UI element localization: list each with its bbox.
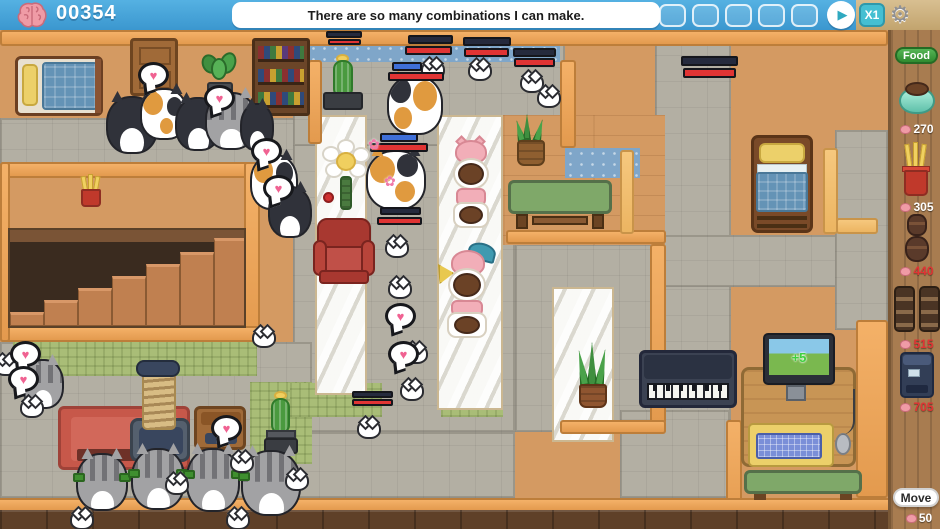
cat-status-bar — [380, 133, 418, 142]
cat-status-bar — [388, 72, 444, 81]
shop-sidebar: Food 270 305 440 515 — [888, 30, 940, 529]
white-kitten[interactable] — [400, 381, 424, 401]
progress-bar-pair — [408, 35, 453, 44]
brain-currency-icon — [900, 403, 911, 412]
food-category-button[interactable]: Food — [895, 47, 938, 64]
game-screen: +5 — [0, 0, 940, 529]
game-field: +5 — [0, 30, 888, 529]
progress-bar-pair — [405, 46, 452, 55]
progress-bar-pair — [683, 68, 736, 78]
heart-bubble: ♥ — [263, 175, 294, 201]
cactus-pot[interactable] — [318, 56, 368, 112]
heart-bubble: ♥ — [211, 415, 242, 441]
cactus-pot-2[interactable] — [260, 392, 302, 456]
speed-toggle-button[interactable]: X1 — [859, 3, 885, 27]
piano[interactable] — [639, 350, 737, 408]
progress-bar-pair — [464, 48, 509, 57]
white-kitten[interactable] — [285, 471, 309, 491]
heart-bubble: ♥ — [8, 366, 39, 392]
shop-item-double-feeder[interactable] — [894, 282, 940, 334]
move-button[interactable]: Move — [893, 488, 939, 507]
white-kitten[interactable] — [537, 88, 561, 108]
cat-calico[interactable] — [366, 150, 426, 210]
brain-currency-icon — [906, 514, 917, 523]
white-kitten[interactable] — [385, 238, 409, 258]
cat-status-bar — [392, 62, 422, 71]
staircase — [8, 228, 246, 328]
gear-icon[interactable]: ⚙ — [886, 0, 914, 28]
heart-bubble: ♥ — [138, 62, 169, 88]
bed-right[interactable] — [751, 135, 813, 233]
wall-yellow — [620, 150, 634, 234]
inventory-slot[interactable] — [692, 4, 719, 27]
stone-path — [655, 235, 852, 287]
shop-item-food-machine[interactable] — [900, 352, 934, 398]
progress-bar-pair — [326, 31, 362, 38]
progress-bar-pair — [377, 217, 422, 225]
progress-bar-pair — [513, 48, 556, 57]
item-price: 270 — [893, 122, 940, 136]
flower-cat-tree[interactable] — [321, 142, 371, 218]
shop-item-food-bowl[interactable] — [897, 80, 937, 118]
progress-bar-pair — [352, 391, 393, 398]
white-kitten[interactable] — [230, 453, 254, 473]
fry-snack[interactable] — [74, 176, 108, 210]
red-armchair[interactable] — [313, 218, 375, 286]
inventory-slot[interactable] — [725, 4, 752, 27]
wall — [0, 162, 258, 178]
heart-bubble: ♥ — [388, 341, 419, 367]
wall — [560, 60, 576, 148]
message-text: There are so many combinations I can mak… — [308, 8, 585, 23]
progress-bar-pair — [380, 207, 421, 215]
bed-left[interactable] — [15, 56, 103, 116]
white-kitten[interactable] — [165, 475, 189, 495]
computer-desk[interactable]: +5 — [741, 345, 856, 467]
shop-item-fry-treats[interactable] — [900, 144, 934, 198]
pink-cat-feeder-hat[interactable] — [438, 250, 496, 338]
scratching-post-cap — [136, 360, 180, 377]
shop-item-barrel-feeder[interactable] — [901, 214, 933, 264]
brain-currency-icon — [900, 203, 911, 212]
white-kitten[interactable] — [388, 279, 412, 299]
score-display: 00354 — [56, 2, 117, 25]
inventory-slot[interactable] — [659, 4, 686, 27]
white-kitten[interactable] — [357, 419, 381, 439]
brain-currency-icon — [16, 2, 48, 33]
item-price: 705 — [893, 400, 940, 414]
wall — [560, 420, 666, 434]
heart-bubble: ♥ — [204, 85, 235, 111]
white-kitten[interactable] — [20, 398, 44, 418]
play-button[interactable]: ▶ — [827, 1, 855, 29]
scratching-post[interactable] — [142, 370, 176, 430]
play-icon: ▶ — [838, 7, 848, 23]
brain-currency-icon — [900, 340, 911, 349]
porch-planks — [0, 510, 888, 529]
white-kitten[interactable] — [70, 510, 94, 529]
sparkle-effect: ✿ — [384, 173, 396, 190]
white-kitten[interactable] — [252, 328, 276, 348]
bonus-popup: +5 — [792, 350, 807, 365]
pink-cat-feeder[interactable] — [448, 140, 494, 228]
inventory-slot[interactable] — [791, 4, 818, 27]
wall — [506, 230, 666, 244]
inventory-slot[interactable] — [758, 4, 785, 27]
white-kitten[interactable] — [226, 510, 250, 529]
item-price: 440 — [893, 264, 940, 278]
barrel-plant[interactable] — [513, 116, 549, 168]
brain-currency-icon — [900, 125, 911, 134]
message-bar[interactable]: There are so many combinations I can mak… — [232, 2, 660, 28]
stone-path — [293, 432, 515, 498]
white-kitten[interactable] — [468, 61, 492, 81]
progress-bar-pair — [352, 399, 393, 406]
item-price: 515 — [893, 337, 940, 351]
sparkle-effect: ✿ — [368, 136, 380, 153]
item-price: 305 — [893, 200, 940, 214]
heart-bubble: ♥ — [385, 303, 416, 329]
heart-bubble: ♥ — [10, 341, 41, 367]
cat-calico[interactable] — [387, 75, 443, 135]
wall-yellow — [836, 218, 878, 234]
green-table[interactable] — [508, 180, 612, 232]
heart-bubble: ♥ — [251, 138, 282, 164]
brain-currency-icon — [900, 267, 911, 276]
move-cost: 50 — [895, 511, 940, 525]
progress-bar-pair — [681, 56, 738, 66]
green-table-bottom[interactable] — [744, 470, 862, 500]
cat-tabby-backpack[interactable] — [76, 453, 128, 511]
snake-plant[interactable] — [573, 342, 613, 410]
progress-bar-pair — [328, 39, 361, 45]
progress-bar-pair — [514, 58, 555, 67]
progress-bar-pair — [463, 37, 511, 46]
wall — [0, 326, 260, 342]
